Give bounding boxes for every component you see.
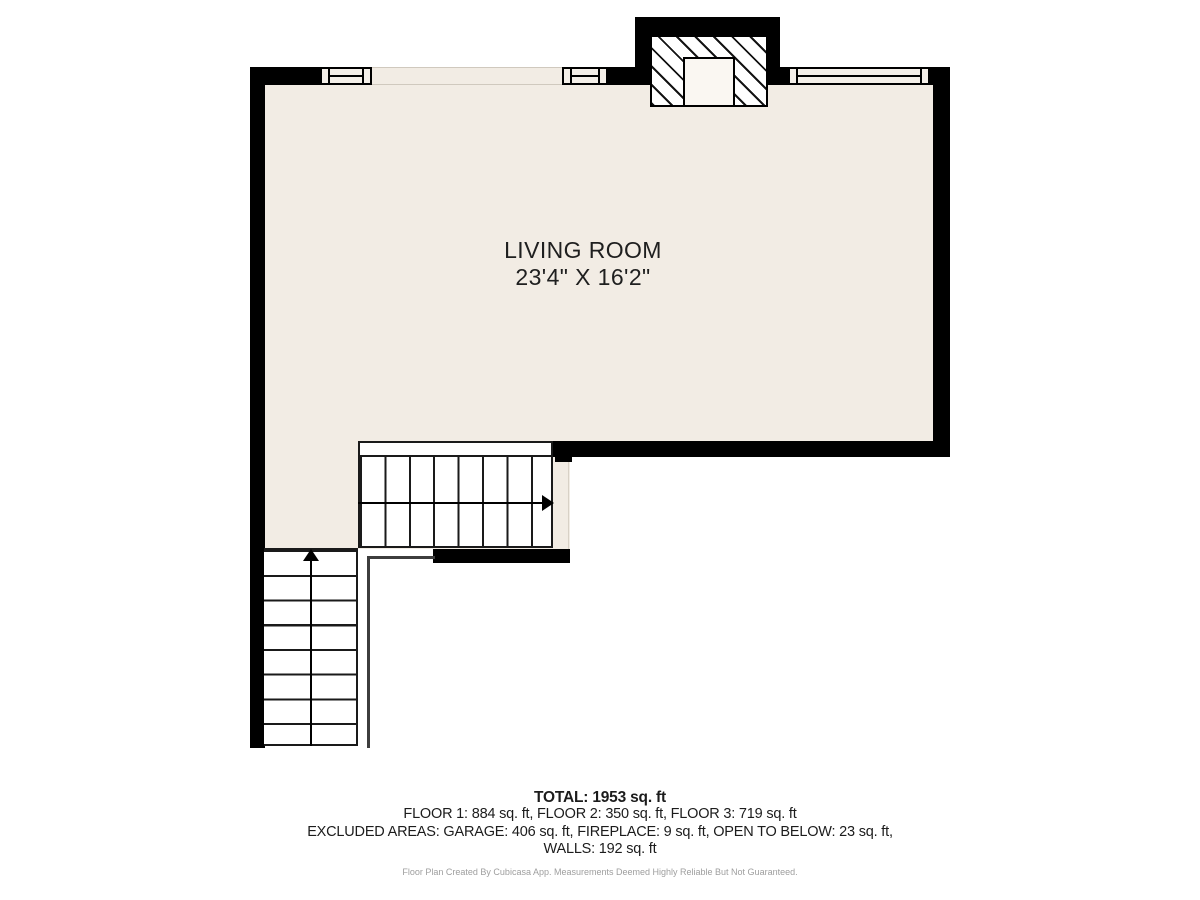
area-summary: TOTAL: 1953 sq. ft FLOOR 1: 884 sq. ft, … — [0, 789, 1200, 859]
floor-areas-text: FLOOR 1: 884 sq. ft, FLOOR 2: 350 sq. ft… — [0, 806, 1200, 823]
living-room-bottom-wall — [503, 441, 950, 457]
arrow-up-icon — [303, 549, 319, 561]
landing-edge-line — [568, 462, 569, 549]
room-dimensions: 23'4" X 16'2" — [433, 264, 733, 291]
window-top-middle — [562, 67, 608, 85]
right-wall — [933, 67, 950, 457]
window-frame-line — [598, 69, 600, 83]
window-frame-line — [570, 75, 600, 77]
stair-walkline — [358, 502, 542, 504]
excluded-areas-text: EXCLUDED AREAS: GARAGE: 406 sq. ft, FIRE… — [0, 824, 1200, 841]
left-wall — [250, 67, 265, 748]
room-label: LIVING ROOM 23'4" X 16'2" — [433, 237, 733, 291]
fireplace-firebox — [683, 57, 735, 107]
stair-bottom-wall — [433, 549, 570, 563]
walls-area-text: WALLS: 192 sq. ft — [0, 841, 1200, 858]
arrow-right-icon — [542, 495, 554, 511]
floor-plan-page: LIVING ROOM 23'4" X 16'2" TOTAL: 1953 sq… — [0, 0, 1200, 900]
window-frame-line — [362, 69, 364, 83]
top-wall-segment-2 — [608, 67, 635, 85]
top-wall-segment-3 — [780, 67, 788, 85]
window-top-left — [320, 67, 372, 85]
disclaimer-text: Floor Plan Created By Cubicasa App. Meas… — [0, 866, 1200, 878]
window-frame-line — [920, 69, 922, 83]
total-area-text: TOTAL: 1953 sq. ft — [0, 789, 1200, 806]
room-name: LIVING ROOM — [433, 237, 733, 264]
stair-treads — [360, 455, 551, 546]
top-wall-segment-1 — [250, 67, 320, 85]
stairs-upper-run — [358, 441, 553, 548]
stair-walkline — [310, 551, 312, 746]
window-top-right — [788, 67, 930, 85]
window-frame-line — [796, 75, 922, 77]
stair-railing-wall-horizontal — [367, 556, 435, 559]
stair-railing-wall-vertical — [367, 556, 370, 748]
wall-stub — [555, 457, 572, 462]
wall-opening — [372, 67, 562, 85]
window-frame-line — [328, 75, 364, 77]
